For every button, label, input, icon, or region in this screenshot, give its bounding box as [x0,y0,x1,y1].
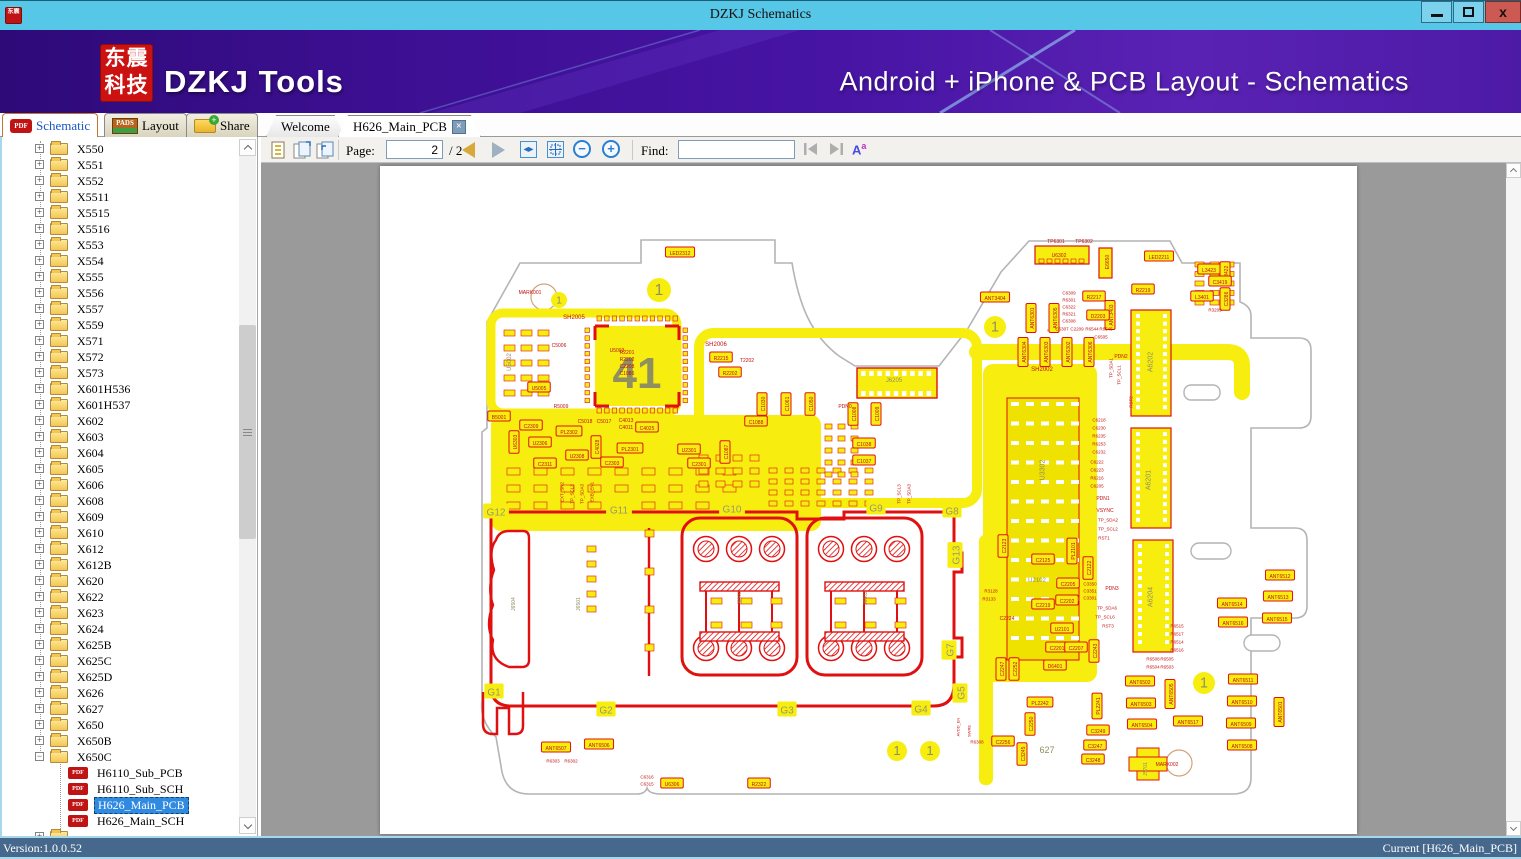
pcb-label: G7 [946,643,957,657]
pcb-label: C2219 [1036,603,1051,609]
find-next-icon[interactable] [826,140,846,160]
expand-icon[interactable]: + [35,560,44,569]
find-previous-icon[interactable] [801,140,821,160]
pcb-label: C1087 [724,444,730,459]
card-modules [682,518,922,675]
tree-item-label: X572 [74,350,107,365]
expand-icon[interactable]: + [35,592,44,601]
pcb-label: C1061 [785,396,791,411]
pcb-label: C2250 [1029,716,1035,731]
tree-item[interactable]: +X555 [2,269,234,285]
tree-item[interactable]: +X550 [2,141,234,157]
page-number-marker-text: 1 [556,295,562,306]
pcb-label: TP6301 [1047,239,1065,245]
tree-item-label: H6110_Sub_SCH [94,782,186,797]
pcb-label: SH2002 [1031,367,1053,373]
tree-item[interactable]: +X608 [2,493,234,509]
tree-item-label: X650 [74,718,107,733]
tree-item-label: X625B [74,638,115,653]
title-bar: 东震 DZKJ Schematics x [0,0,1521,30]
expand-icon[interactable]: + [35,352,44,361]
expand-icon[interactable]: + [35,704,44,713]
pcb-label: AVDD_EN [955,718,960,737]
pcb-label: RST3 [1102,624,1114,629]
find-input[interactable] [678,140,795,159]
tree-item[interactable]: +X626 [2,685,234,701]
tree-item[interactable]: +X603 [2,429,234,445]
tree-item-label: X559 [74,318,107,333]
pcb-label: C5017 [597,419,612,425]
tree-item[interactable]: +X552 [2,173,234,189]
pcb-label: C6315 [640,782,654,787]
tree-item[interactable]: +X551 [2,157,234,173]
pcb-label: C3301 [1083,596,1097,601]
expand-icon[interactable]: + [35,416,44,425]
tree-item[interactable]: +X610 [2,525,234,541]
share-folder-icon: + [194,119,216,133]
pcb-label: R2201 [620,350,635,356]
tree-item[interactable]: +X612B [2,557,234,573]
tree-item[interactable]: +X572 [2,349,234,365]
expand-icon[interactable]: + [35,432,44,441]
pcb-label: TP_SDA2 [1098,518,1119,523]
pcb-label: R2202 [723,371,738,377]
pcb-label: ANT6509 [1230,722,1251,728]
tab-schematic[interactable]: PDF Schematic [2,113,98,137]
pcb-label: T2202 [740,358,754,364]
minimize-button[interactable] [1421,1,1452,23]
tree-item[interactable]: +X5516 [2,221,234,237]
pcb-label: C2256 [996,740,1011,746]
folder-icon [50,607,68,619]
folder-icon [50,703,68,715]
tree-item-label: X609 [74,510,107,525]
pcb-label: G1 [487,688,501,699]
tree-item[interactable]: +X623 [2,605,234,621]
zoom-in-button[interactable]: + [602,140,620,158]
tree-item[interactable]: +X556 [2,285,234,301]
pcb-label: ANT6304 [1022,341,1028,362]
pcb-label: R6517 [1170,632,1184,637]
tree-item-label: X620 [74,574,107,589]
pcb-label: R2217 [1087,295,1102,301]
tree-item-label: X626 [74,686,107,701]
tree-item-label: X555 [74,270,107,285]
expand-icon[interactable]: + [35,448,44,457]
tree-item[interactable]: +X606 [2,477,234,493]
pcb-label: U6306 [665,782,680,788]
pcb-label: SWRE [966,725,971,737]
pcb-label: RST2 [1129,396,1134,408]
expand-icon[interactable]: + [35,240,44,249]
doc-tab-welcome-label: Welcome [281,119,330,135]
tree-item[interactable]: +X625C [2,653,234,669]
tree-item-label: X5511 [74,190,112,205]
version-label: Version:1.0.0.52 [3,841,82,856]
current-document-label: Current [H626_Main_PCB] [1383,841,1517,856]
tree-item[interactable]: +X627 [2,701,234,717]
pads-icon: PADS [112,118,138,134]
expand-icon[interactable]: + [35,688,44,697]
sidebar-scrollbar[interactable] [239,139,256,834]
folder-icon [50,511,68,523]
pcb-label: U2102 [1028,578,1046,584]
pcb-label: C6222 [1090,460,1104,465]
viewer-scroll-up-button[interactable] [1506,163,1521,178]
tree-item[interactable]: +X5511 [2,189,234,205]
expand-icon[interactable]: + [35,736,44,745]
pcb-label: C6223 [1090,468,1104,473]
doc-tab-welcome[interactable]: Welcome [266,115,345,137]
expand-icon[interactable]: + [35,208,44,217]
page-number-input[interactable] [386,140,443,159]
previous-page-icon[interactable] [462,142,475,158]
tree-item[interactable]: +X605 [2,461,234,477]
pcb-label: C3350 [1083,582,1097,587]
tree-item[interactable]: +X601H536 [2,381,234,397]
pcb-label: ANT6302 [1066,341,1072,362]
tree-item[interactable]: +X650B [2,733,234,749]
pcb-label: U2101 [1055,627,1070,633]
tree-item-label: X554 [74,254,107,269]
expand-icon[interactable]: + [35,528,44,537]
pcb-label: R6216 [1090,476,1104,481]
pcb-label: C3248 [1086,758,1101,764]
pcb-label: SH2005 [563,315,585,321]
pcb-label: ANT6513 [1267,595,1288,601]
expand-icon[interactable]: + [35,384,44,393]
pcb-label: LED2312 [670,251,691,257]
tree-item[interactable]: +X554 [2,253,234,269]
pcb-label: C2201 [1050,646,1065,652]
pcb-label: ANT6507 [545,746,566,752]
page-number-marker-text: 1 [893,743,900,758]
board-cutout [1244,635,1280,651]
pcb-label: ANT6512 [1269,574,1290,580]
tree-item[interactable]: +X571 [2,333,234,349]
viewer-scrollbar[interactable] [1506,163,1521,836]
expand-icon[interactable]: + [35,656,44,665]
tree-item-label: X608 [74,494,107,509]
expand-icon[interactable]: + [35,496,44,505]
pcb-label: J6205 [886,378,903,384]
expand-icon[interactable]: + [35,640,44,649]
tree-item[interactable]: PDFH6110_Sub_SCH [2,781,234,797]
tree-item[interactable]: +X609 [2,509,234,525]
pcb-document-page[interactable]: 41 G12G11G10G9G8G13G7G5G1G2G3G4SH2005SH2… [380,166,1357,834]
tab-share-label: Share [220,118,250,134]
pcb-label: G9 [869,504,883,515]
folder-icon [50,639,68,651]
pcb-label: C3245 [1021,746,1027,761]
scroll-down-button[interactable] [239,817,256,834]
tree-item-label: X551 [74,158,107,173]
pcb-label: C2311 [538,462,553,468]
pcb-label: R6544 [1085,327,1099,332]
pcb-label: C1030 [761,396,767,411]
tab-layout[interactable]: PADS Layout [104,113,187,137]
pcb-label: C6309 [1062,291,1076,296]
tree-item-label: X612B [74,558,115,573]
pcb-label: C6322 [1062,305,1076,310]
expand-icon[interactable]: + [35,608,44,617]
folder-icon [50,431,68,443]
tree-item-label: X604 [74,446,107,461]
folder-icon [50,463,68,475]
tree-item[interactable]: +X5515 [2,205,234,221]
pcb-label: LED2211 [1149,255,1170,261]
pcb-label: L3423 [1202,268,1216,274]
pcb-viewer-canvas[interactable]: 41 G12G11G10G9G8G13G7G5G1G2G3G4SH2005SH2… [261,163,1521,836]
folder-icon [50,335,68,347]
folder-icon [50,655,68,667]
expand-icon[interactable]: + [35,176,44,185]
expand-icon[interactable]: + [35,720,44,729]
expand-icon[interactable]: + [35,272,44,281]
header-banner: 东震 科技 DZKJ Tools Android + iPhone & PCB … [0,30,1521,113]
folder-icon [50,527,68,539]
tree-item[interactable]: +X557 [2,301,234,317]
tree-item[interactable]: +X559 [2,317,234,333]
tree-item[interactable]: +X612 [2,541,234,557]
expand-icon[interactable]: + [35,400,44,409]
font-size-icon[interactable]: Aa [852,141,866,157]
expand-icon[interactable]: + [35,672,44,681]
pcb-label: B5001 [492,415,507,421]
tree-item-label: X625D [74,670,115,685]
pcb-label: R3209 [1208,308,1222,313]
doc-tab-h626-main-pcb[interactable]: H626_Main_PCB × [338,115,481,137]
tree-item-label: X571 [74,334,107,349]
pcb-label: C2207 [1069,646,1084,652]
snapshot-page-icon[interactable] [292,140,312,160]
pcb-label: ANT6501 [1278,701,1284,722]
pcb-label: J6502 [863,591,869,605]
scroll-up-button[interactable] [239,139,256,156]
viewer-toolbar: Page: / 2 ◂▸ − + Find: Aa [261,137,1521,163]
pdf-icon: PDF [10,119,32,133]
tree-item[interactable]: +X573 [2,365,234,381]
folder-icon [50,383,68,395]
folder-icon [50,687,68,699]
pcb-label: C6232 [1092,450,1106,455]
pcb-label: C2224 [1000,616,1015,622]
tree-item-label: X606 [74,478,107,493]
folder-icon [50,271,68,283]
tree-item-label: X601H537 [74,398,133,413]
close-button[interactable]: x [1485,1,1521,23]
pcb-label: C6307 [1055,327,1069,332]
pcb-label: TP_SDA6 [1097,606,1118,611]
page-number-marker-text: 1 [926,743,933,758]
pcb-label: ANT3404 [984,296,1005,302]
expand-icon[interactable]: + [35,144,44,153]
tree-item[interactable]: PDFH626_Main_PCB [2,797,234,813]
pcb-label: EXT_SN2 [560,482,565,503]
tree-item-label: X557 [74,302,107,317]
pcb-label: C6230 [1092,426,1106,431]
folder-icon [50,415,68,427]
pcb-label: C2125 [1036,558,1051,564]
pcb-label: C5018 [578,419,593,425]
expand-icon[interactable]: + [35,576,44,585]
pdf-icon: PDF [68,815,88,827]
expand-icon[interactable]: + [35,512,44,521]
expand-icon[interactable]: + [35,624,44,633]
doc-tab-close-icon[interactable]: × [452,120,466,134]
next-page-icon[interactable] [492,142,505,158]
pcb-label: TP_SDA3 [907,484,912,505]
tree-item-label: X601H536 [74,382,133,397]
pcb-label: R6545 [1099,327,1113,332]
tree-item-label: X552 [74,174,107,189]
tree-item[interactable]: +X625B [2,637,234,653]
tree-item-label: X573 [74,366,107,381]
page-number-marker-text: 1 [1200,676,1208,692]
folder-icon [50,543,68,555]
pcb-label: C2205 [1061,582,1076,588]
copy-text-icon[interactable] [269,140,289,160]
fit-page-button[interactable] [547,141,564,158]
expand-icon[interactable]: + [35,544,44,553]
expand-icon[interactable]: + [35,336,44,345]
tree-item[interactable]: +X625D [2,669,234,685]
folder-icon [50,223,68,235]
pcb-label: ANT6510 [1231,700,1252,706]
pcb-label: R6301 [1062,298,1076,303]
fit-width-button[interactable]: ◂▸ [520,141,537,158]
pcb-label: MARK002 [1156,762,1179,768]
scrollbar-thumb[interactable] [239,325,256,539]
folder-icon [50,751,68,763]
pcb-label: C2209 [1070,327,1084,332]
pcb-label: R6516 [1170,648,1184,653]
board-cutout [1191,543,1231,559]
tree-item-label: X5515 [74,206,113,221]
pcb-label: C1086 [620,371,635,377]
expand-icon[interactable]: + [35,304,44,313]
tree-item-label: X602 [74,414,107,429]
tree-item-label: X622 [74,590,107,605]
pcb-label: R6321 [1062,312,1076,317]
tree-item[interactable]: + [2,829,234,836]
tree-item[interactable]: +X650 [2,717,234,733]
tree-item[interactable]: −X650C [2,749,234,765]
page-number-marker-text: 1 [655,282,664,299]
expand-icon[interactable]: + [35,160,44,169]
pcb-label: ANT6516 [1222,621,1243,627]
tree-item[interactable]: PDFH626_Main_SCH [2,813,234,829]
pcb-label: C2123 [1002,538,1008,553]
pcb-label: C6505 [1094,335,1108,340]
pcb-label: C3249 [1091,729,1106,735]
pcb-label: C2303 [605,461,620,467]
logo-line2: 科技 [101,72,152,99]
expand-icon[interactable]: + [35,256,44,265]
find-label: Find: [641,143,668,159]
pcb-label: R6514 [1170,640,1184,645]
pdf-icon: PDF [68,799,88,811]
tab-layout-label: Layout [142,118,179,134]
pcb-label: G12 [487,508,506,519]
folder-icon [50,175,68,187]
pcb-label: ANT6508 [1231,744,1252,750]
folder-icon [50,559,68,571]
board-cutout [1184,385,1220,400]
pcb-label: G10 [723,505,742,516]
pcb-label: G2 [599,706,613,717]
logo-line1: 东震 [101,45,152,72]
tree-item[interactable]: PDFH6110_Sub_PCB [2,765,234,781]
expand-icon[interactable]: + [35,288,44,297]
pcb-label: G11 [610,506,629,517]
pcb-label: ANT6301 [1030,307,1036,328]
expand-icon[interactable]: + [35,368,44,377]
pcb-label: TP_SDA1 [1109,358,1114,379]
pcb-label: C3247 [1088,744,1103,750]
viewer-scroll-down-button[interactable] [1506,821,1521,836]
close-icon: x [1499,4,1507,20]
expand-icon[interactable]: + [35,464,44,473]
pcb-label: C2122 [1087,560,1093,575]
pcb-label: C6218 [1092,418,1106,423]
tree-item[interactable]: +X553 [2,237,234,253]
tree-item[interactable]: +X604 [2,445,234,461]
pcb-label: PDN2 [1114,354,1128,360]
pcb-label: C1050 [809,396,815,411]
expand-icon[interactable]: + [35,320,44,329]
pcb-label: ANT6503 [1130,702,1151,708]
tree-item-label: X556 [74,286,107,301]
folder-icon [50,735,68,747]
tree-item[interactable]: +X601H537 [2,397,234,413]
collapse-icon[interactable]: − [35,752,44,761]
pcb-label: ANT6305 [1053,307,1059,328]
pcb-label: TP_SCL2 [1098,527,1118,532]
tree-item[interactable]: +X602 [2,413,234,429]
expand-icon[interactable]: + [35,480,44,489]
pcb-label: J6503 [737,591,743,605]
folder-icon [50,255,68,267]
zoom-out-button[interactable]: − [573,140,591,158]
pcb-label: R6308 [970,740,984,745]
maximize-button[interactable] [1453,1,1484,23]
status-bar: Version:1.0.0.52 Current [H626_Main_PCB] [0,836,1521,857]
page-label: Page: [346,143,375,159]
pcb-label: J5701 [1143,762,1149,776]
expand-icon[interactable]: + [35,224,44,233]
tree-item[interactable]: +X620 [2,573,234,589]
yellow-strip [979,535,993,785]
expand-icon[interactable]: + [35,192,44,201]
folder-icon [50,399,68,411]
tree-item[interactable]: +X624 [2,621,234,637]
pcb-label: ANT6504 [1131,723,1152,729]
pcb-label: C1038 [857,442,872,448]
app-window: 东震 DZKJ Schematics x 东震 科技 DZKJ Tools An… [0,0,1521,859]
pcb-label: A6204 [1148,587,1155,607]
battery-connector-outline [489,531,529,667]
tree-item[interactable]: +X622 [2,589,234,605]
maximize-icon [1463,7,1474,17]
tab-share[interactable]: + Share [186,113,258,137]
pcb-label: ANT6505 [1169,683,1175,704]
pcb-label: TP_SCL3 [570,484,575,504]
folder-icon [50,367,68,379]
tree-item-label: X612 [74,542,107,557]
snapshot-region-icon[interactable] [315,140,335,160]
pcb-label: TP_SDA3 [580,484,585,505]
